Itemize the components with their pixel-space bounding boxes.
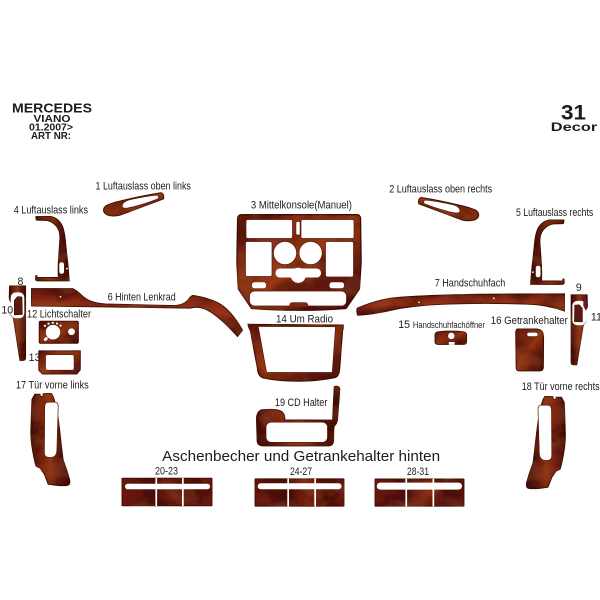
svg-text:3 Mittelkonsole(Manuel): 3 Mittelkonsole(Manuel) xyxy=(251,200,352,212)
svg-text:10: 10 xyxy=(1,305,13,317)
svg-text:12 Lichtschalter: 12 Lichtschalter xyxy=(27,308,91,320)
svg-text:Decor: Decor xyxy=(551,120,598,134)
svg-text:1 Luftauslass oben links: 1 Luftauslass oben links xyxy=(96,181,191,193)
svg-text:7 Handschuhfach: 7 Handschuhfach xyxy=(435,278,506,290)
svg-text:6 Hinten Lenkrad: 6 Hinten Lenkrad xyxy=(108,291,176,303)
svg-text:4 Luftauslass links: 4 Luftauslass links xyxy=(14,205,88,217)
svg-text:18 Tür vorne rechts: 18 Tür vorne rechts xyxy=(522,381,600,393)
svg-text:2 Luftauslass oben rechts: 2 Luftauslass oben rechts xyxy=(389,184,492,196)
svg-text:16 Getrankehalter: 16 Getrankehalter xyxy=(491,315,568,327)
svg-text:14 Um Radio: 14 Um Radio xyxy=(276,313,333,325)
svg-text:24-27: 24-27 xyxy=(290,466,312,478)
svg-text:Aschenbecher und Getrankehalte: Aschenbecher und Getrankehalter hinten xyxy=(162,449,440,465)
svg-text:19 CD Halter: 19 CD Halter xyxy=(275,397,328,409)
svg-text:28-31: 28-31 xyxy=(407,466,429,478)
svg-text:11: 11 xyxy=(591,312,600,324)
svg-text:15 Handschuhfachöffner: 15 Handschuhfachöffner xyxy=(398,319,485,331)
svg-text:ART NR:: ART NR: xyxy=(31,131,71,142)
svg-text:5 Luftauslass rechts: 5 Luftauslass rechts xyxy=(516,207,593,219)
svg-text:20-23: 20-23 xyxy=(155,466,178,478)
svg-text:9: 9 xyxy=(576,282,582,294)
svg-text:17 Tür vorne links: 17 Tür vorne links xyxy=(16,379,89,391)
